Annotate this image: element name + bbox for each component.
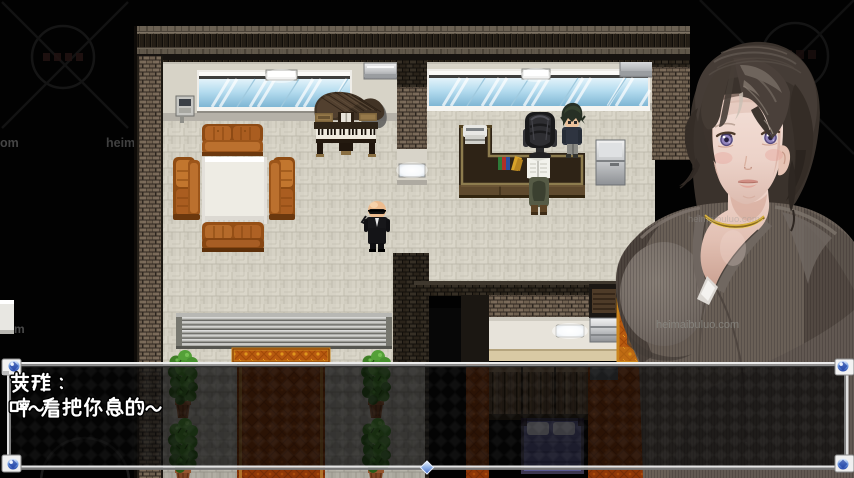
svg-text:heimaibuluo.com: heimaibuluo.com bbox=[688, 214, 760, 225]
svg-text:heimaibuluo.com: heimaibuluo.com bbox=[656, 319, 739, 331]
svg-text:om: om bbox=[0, 136, 19, 150]
svg-text:heim: heim bbox=[106, 136, 135, 150]
